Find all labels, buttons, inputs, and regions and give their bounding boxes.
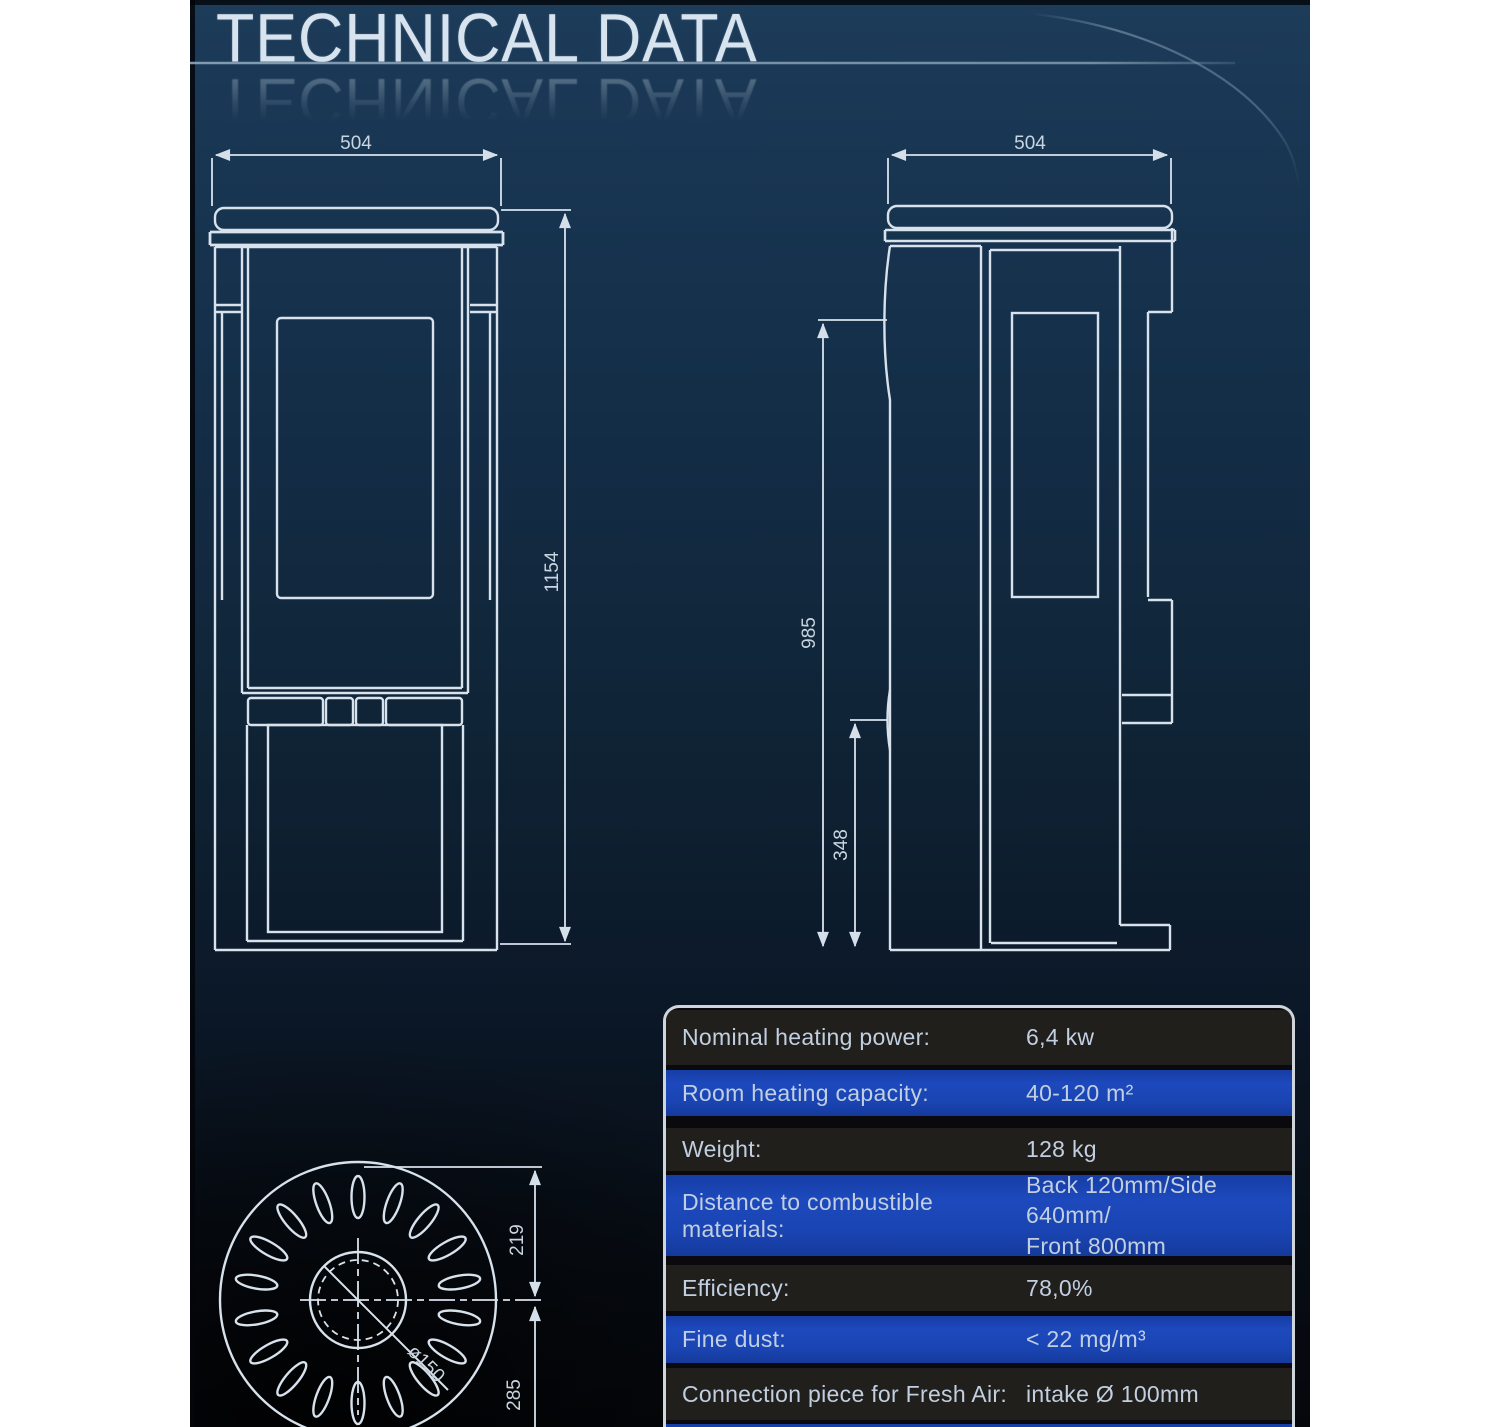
spec-value: Back 120mm/Side 640mm/ Front 800mm <box>1026 1170 1292 1261</box>
top-285-dim-label: 285 <box>504 1379 525 1411</box>
spec-label: Nominal heating power: <box>666 1024 1026 1051</box>
table-row: Nominal heating power: 6,4 kw <box>666 1010 1292 1065</box>
front-width-dimension <box>212 155 501 206</box>
spec-value: intake Ø 100mm <box>1026 1379 1292 1409</box>
scanned-page: TECHNICAL DATA TECHNICAL DATA <box>190 0 1310 1427</box>
spec-label: Room heating capacity: <box>666 1080 1026 1107</box>
side-view-drawing <box>818 155 1175 950</box>
spec-table: Nominal heating power: 6,4 kw Room heati… <box>663 1005 1295 1427</box>
spec-value: 128 kg <box>1026 1134 1292 1164</box>
spec-label: Distance to combustible materials: <box>666 1189 1026 1243</box>
front-top-strips <box>210 232 503 245</box>
front-width-dim-label: 504 <box>340 133 372 154</box>
front-base <box>247 725 463 941</box>
top-219-dim-label: 219 <box>507 1224 528 1256</box>
side-985-dimension <box>818 320 887 946</box>
table-row: Distance to combustible materials: Back … <box>666 1175 1292 1256</box>
vent-slot <box>380 1181 407 1225</box>
spec-label: Weight: <box>666 1136 1026 1163</box>
vent-slot <box>309 1375 336 1419</box>
vent-slot <box>438 1308 482 1328</box>
table-row: Efficiency: 78,0% <box>666 1265 1292 1311</box>
side-depth-dim-label: 504 <box>1014 133 1046 154</box>
side-top-plate <box>888 206 1172 228</box>
table-row: Fine dust: < 22 mg/m³ <box>666 1316 1292 1363</box>
front-handle-rail <box>248 698 462 725</box>
vent-slot <box>438 1272 482 1292</box>
vent-slot <box>247 1335 290 1367</box>
side-348-dimension <box>850 720 887 946</box>
spec-value: 6,4 kw <box>1026 1022 1292 1052</box>
vent-slot <box>247 1232 290 1264</box>
vent-slot <box>406 1201 443 1242</box>
table-row: Room heating capacity: 40-120 m² <box>666 1070 1292 1116</box>
side-back-step <box>1122 695 1172 723</box>
front-base-panel <box>268 725 442 932</box>
vent-slot <box>235 1272 279 1292</box>
header-swoosh-curve <box>1035 14 1299 188</box>
front-side-panel-joints <box>215 305 497 312</box>
side-bottom-step <box>1120 925 1170 950</box>
top-view-drawing <box>220 1162 542 1427</box>
vent-slot <box>426 1232 469 1264</box>
vent-slot <box>380 1375 407 1419</box>
spec-value: 78,0% <box>1026 1273 1292 1303</box>
vent-slot <box>352 1176 365 1218</box>
vent-slot <box>273 1201 310 1242</box>
spec-label: Efficiency: <box>666 1275 1026 1302</box>
side-back-panel <box>1120 228 1172 925</box>
vent-slot <box>309 1181 336 1225</box>
side-front-edge <box>884 246 890 950</box>
side-985-dim-label: 985 <box>799 617 820 649</box>
front-height-dim-label: 1154 <box>542 551 563 592</box>
spec-value-line1: Back 120mm/Side 640mm/ <box>1026 1170 1292 1231</box>
spec-label: Fine dust: <box>666 1326 1026 1353</box>
front-view-drawing <box>210 155 571 950</box>
spec-label: Connection piece for Fresh Air: <box>666 1381 1026 1408</box>
spec-value: 40-120 m² <box>1026 1078 1292 1108</box>
table-row: Weight: 128 kg <box>666 1128 1292 1171</box>
side-depth-dimension <box>888 155 1171 204</box>
spec-value-line2: Front 800mm <box>1026 1231 1292 1261</box>
side-top-strips <box>885 230 1175 241</box>
spec-value: < 22 mg/m³ <box>1026 1324 1292 1354</box>
front-side-panel-insets <box>222 312 490 600</box>
front-top-plate <box>215 208 498 230</box>
vent-slot <box>235 1308 279 1328</box>
side-window <box>1012 313 1098 597</box>
vent-slot <box>273 1359 310 1400</box>
table-row: Connection piece for Fresh Air: intake Ø… <box>666 1368 1292 1420</box>
front-door-window <box>277 318 433 598</box>
side-348-dim-label: 348 <box>831 829 852 861</box>
